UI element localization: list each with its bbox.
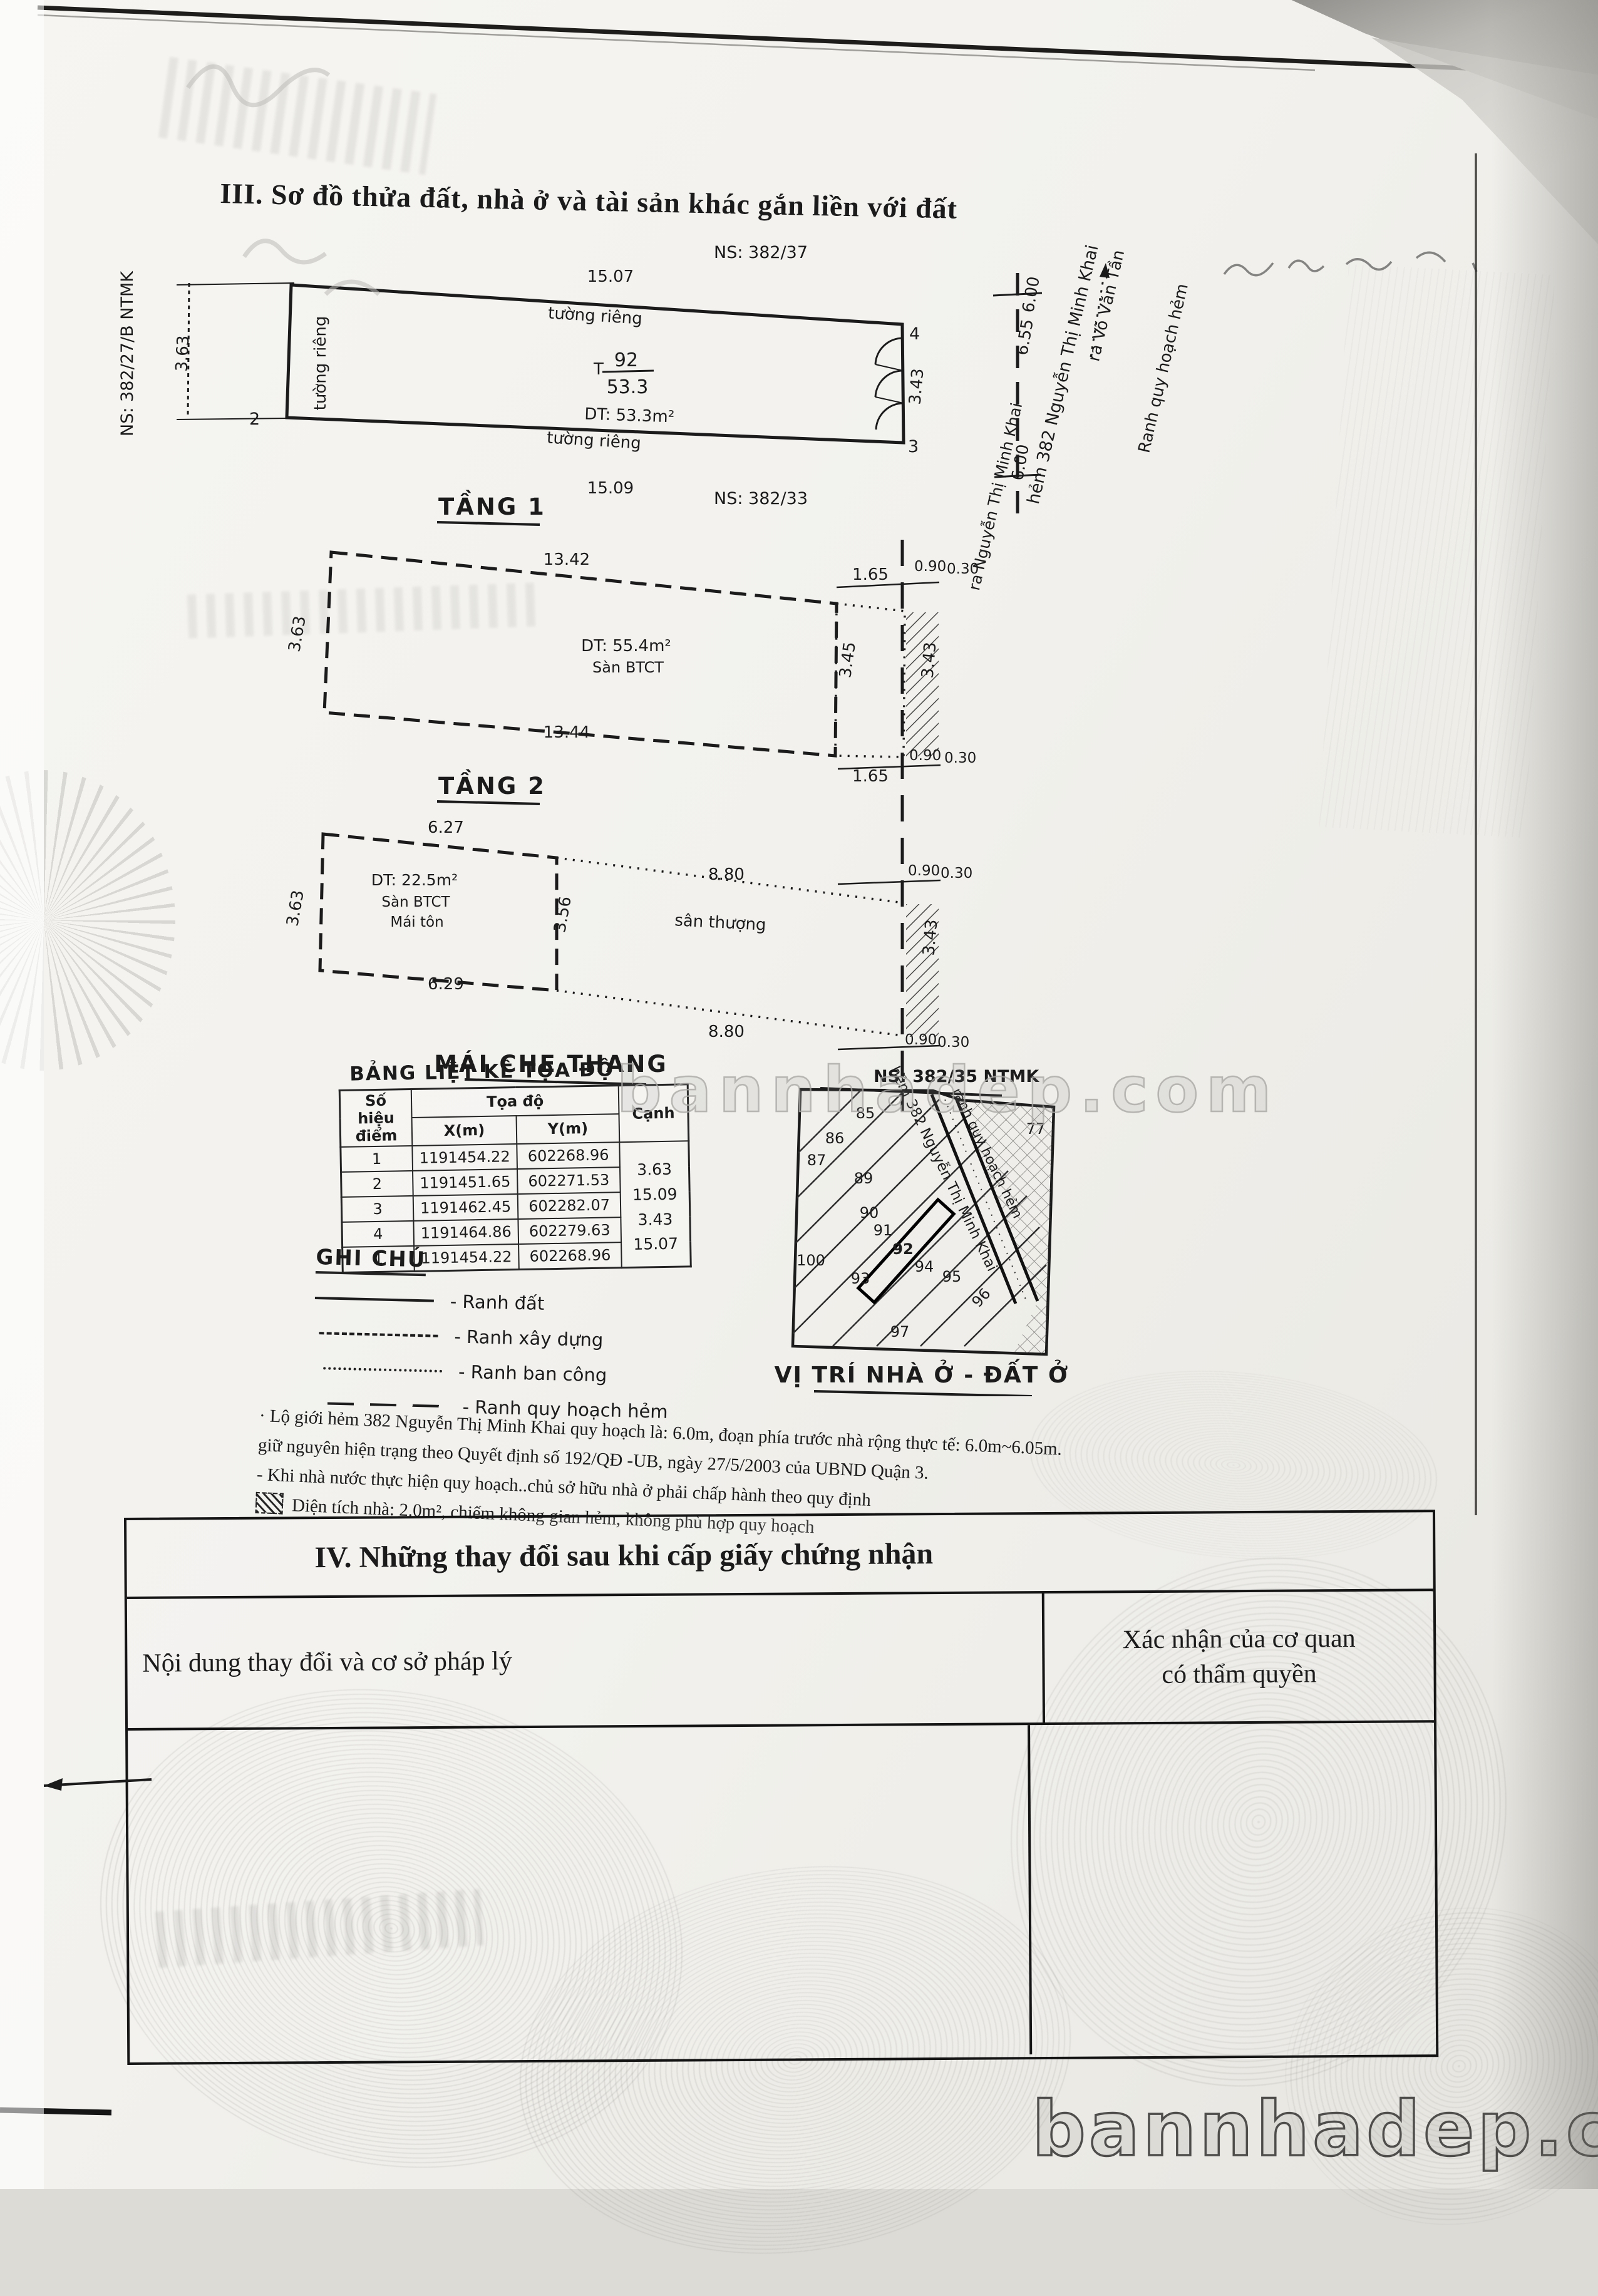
- col-confirmation-header: Xác nhận của cơ quan có thẩm quyền: [1044, 1591, 1434, 1722]
- legend-item-construction-boundary: - Ranh xây dựng: [319, 1322, 670, 1352]
- legend-label: - Ranh đất: [450, 1290, 544, 1314]
- section-4-title: IV. Những thay đổi sau khi cấp giấy chứn…: [126, 1512, 1433, 1599]
- coord-y: 602279.63: [518, 1217, 621, 1244]
- point-id: 4: [342, 1221, 414, 1247]
- point-id: 3: [341, 1196, 413, 1222]
- coordinate-table-block: BẢNG LIỆT KÊ TỌA ĐỘ Số hiệu điểm Tọa độ …: [338, 1057, 692, 1273]
- legend-label: - Ranh xây dựng: [454, 1326, 604, 1351]
- solid-line-sample: [315, 1297, 434, 1302]
- coord-x: 1191451.65: [413, 1169, 518, 1196]
- edge-length: [619, 1131, 689, 1157]
- legend-item-land-boundary: - Ranh đất: [315, 1287, 671, 1317]
- col-x-header: X(m): [412, 1116, 517, 1146]
- legend-label: - Ranh ban công: [458, 1361, 607, 1386]
- coordinate-table: Số hiệu điểm Tọa độ Cạnh X(m) Y(m) 1 119…: [339, 1083, 692, 1273]
- edge-length: 3.43: [621, 1206, 690, 1232]
- legend-title: GHI CHÚ: [316, 1245, 426, 1276]
- section-4-header-row: Nội dung thay đổi và cơ sở pháp lý Xác n…: [127, 1591, 1434, 1731]
- point-id: 2: [341, 1171, 413, 1197]
- hatch-symbol-icon: [255, 1492, 284, 1515]
- edge-length: 15.09: [620, 1181, 689, 1207]
- dashed-line-sample: [319, 1332, 438, 1337]
- coord-x: 1191464.86: [413, 1219, 518, 1246]
- col-confirmation-line1: Xác nhận của cơ quan: [1123, 1621, 1356, 1657]
- content-cell-empty: [128, 1725, 1032, 2060]
- col-confirmation-line2: có thẩm quyền: [1162, 1656, 1317, 1692]
- coord-x: 1191462.45: [413, 1194, 518, 1221]
- confirmation-cell-empty: [1030, 1722, 1436, 2054]
- coord-y: 602282.07: [518, 1192, 621, 1219]
- dotted-line-sample: [323, 1367, 442, 1372]
- col-y-header: Y(m): [517, 1114, 620, 1144]
- section-4-table: IV. Những thay đổi sau khi cấp giấy chứn…: [124, 1510, 1438, 2065]
- coord-y: 602271.53: [517, 1167, 621, 1194]
- edge-length: 3.63: [620, 1156, 689, 1182]
- legend-block: GHI CHÚ - Ranh đất - Ranh xây dựng - Ran…: [312, 1245, 671, 1423]
- col-point-header: Số hiệu điểm: [339, 1089, 412, 1146]
- point-id: 1: [341, 1146, 413, 1172]
- coord-y: 602268.96: [517, 1142, 620, 1169]
- section-4-body-row: [128, 1722, 1436, 2060]
- coord-x: 1191454.22: [412, 1144, 517, 1171]
- col-content-header: Nội dung thay đổi và cơ sở pháp lý: [127, 1593, 1045, 1728]
- scanned-certificate-page: { "section3": { "title": "III. Sơ đồ thử…: [0, 0, 1598, 2189]
- col-coords-header: Tọa độ: [411, 1086, 619, 1118]
- legend-item-balcony-boundary: - Ranh ban công: [323, 1357, 669, 1387]
